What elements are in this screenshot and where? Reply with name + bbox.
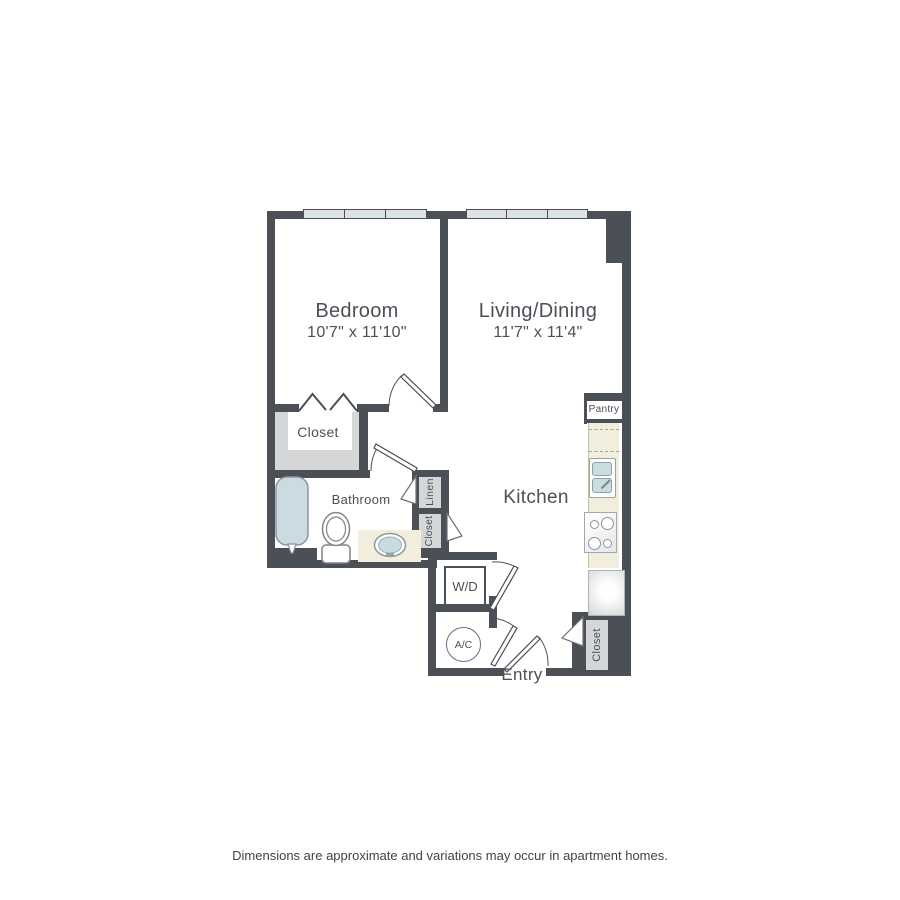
wall bbox=[267, 470, 370, 478]
wall bbox=[489, 612, 497, 628]
window-pane bbox=[548, 210, 587, 218]
plan-linework bbox=[0, 0, 900, 900]
entry-closet-label: Closet bbox=[591, 615, 603, 675]
wall bbox=[433, 404, 448, 412]
bathroom-label: Bathroom bbox=[321, 492, 401, 507]
air-conditioner-label: A/C bbox=[455, 639, 473, 651]
kitchen-label: Kitchen bbox=[486, 487, 586, 509]
bedroom-label-group: Bedroom 10'7" x 11'10" bbox=[277, 300, 437, 342]
counter-dash-line bbox=[589, 451, 619, 452]
bathroom-vanity bbox=[358, 530, 421, 562]
window-pane bbox=[304, 210, 345, 218]
toilet-bowl-inner bbox=[327, 517, 346, 541]
stove-burner bbox=[588, 537, 601, 550]
kitchen-sink bbox=[589, 458, 616, 498]
door-arc bbox=[539, 637, 548, 666]
door-arc bbox=[371, 448, 377, 471]
door-arc bbox=[389, 376, 402, 407]
door-leaf-ac bbox=[491, 626, 517, 666]
bathtub bbox=[276, 477, 308, 545]
wall bbox=[428, 552, 436, 676]
floor-plan: W/D A/C bbox=[0, 0, 900, 900]
window-pane bbox=[467, 210, 507, 218]
wall bbox=[357, 404, 389, 412]
wall bbox=[267, 211, 275, 568]
door-arc bbox=[492, 562, 516, 567]
window-pane bbox=[345, 210, 386, 218]
window-living bbox=[466, 209, 588, 219]
window-bedroom bbox=[303, 209, 427, 219]
window-pane bbox=[507, 210, 547, 218]
toilet-bowl bbox=[323, 513, 350, 546]
living-dining-label: Living/Dining bbox=[458, 300, 618, 323]
hall-closet-label: Closet bbox=[424, 501, 436, 561]
disclaimer-text: Dimensions are approximate and variation… bbox=[0, 848, 900, 863]
door-leaf-bathroom bbox=[374, 444, 417, 472]
pantry-label: Pantry bbox=[584, 404, 624, 415]
bedroom-label: Bedroom bbox=[277, 300, 437, 323]
wall bbox=[359, 412, 368, 478]
stove-burner bbox=[590, 520, 599, 529]
refrigerator bbox=[588, 570, 625, 616]
door-wedge-hall-closet bbox=[447, 513, 462, 541]
counter-dash-line bbox=[589, 429, 619, 430]
sink-basin bbox=[592, 478, 612, 493]
bedroom-dimensions: 10'7" x 11'10" bbox=[277, 323, 437, 342]
washer-dryer-label: W/D bbox=[452, 579, 477, 594]
wall bbox=[440, 219, 448, 412]
washer-dryer: W/D bbox=[444, 566, 486, 607]
bifold-door bbox=[299, 394, 357, 411]
door-leaf-bedroom bbox=[401, 374, 436, 408]
living-dining-label-group: Living/Dining 11'7" x 11'4" bbox=[458, 300, 618, 342]
entry-label: Entry bbox=[492, 665, 552, 685]
wall bbox=[267, 404, 299, 412]
sink-basin bbox=[592, 462, 612, 476]
wall bbox=[428, 552, 497, 560]
stove bbox=[584, 512, 617, 553]
wall bbox=[489, 596, 497, 612]
wall-pantry bbox=[584, 393, 624, 401]
stove-burner bbox=[603, 539, 612, 548]
window-pane bbox=[386, 210, 426, 218]
living-dining-dimensions: 11'7" x 11'4" bbox=[458, 323, 618, 342]
bedroom-closet-label: Closet bbox=[278, 424, 358, 440]
stove-burner bbox=[601, 517, 614, 530]
air-conditioner: A/C bbox=[446, 627, 481, 662]
